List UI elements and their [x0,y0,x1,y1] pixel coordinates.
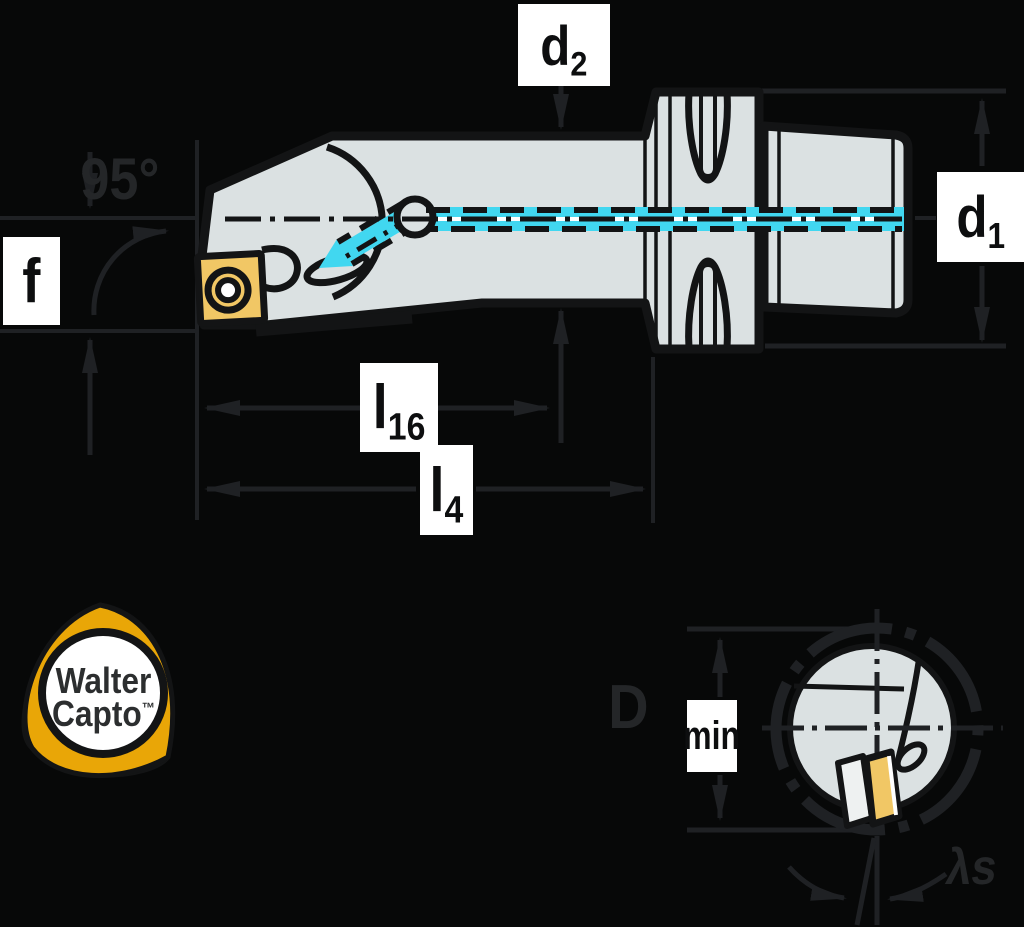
logo-text: Walter Capto™ [33,664,173,730]
label-lambda-s: λs [944,838,1000,896]
l16-base: l [373,373,388,442]
dmin-base: D [608,672,648,743]
label-d1: d1 [937,172,1024,262]
lambda-arrow-right [890,874,946,899]
angle-text: 95° [80,146,159,213]
label-dmin-base: D [606,672,651,743]
insert-screw-core [218,280,239,301]
f-base: f [22,246,40,317]
dmin-sub: min [684,714,741,759]
drawing-canvas [0,0,1024,927]
d1-sub: 1 [987,214,1005,256]
lambda-tilted-line [857,838,874,925]
section-rake-chord [794,686,904,689]
d1-base: d [956,185,987,250]
d2-base: d [540,14,570,77]
l16-sub: 16 [388,406,426,450]
label-d2: d2 [518,4,610,86]
logo-trademark: ™ [141,700,154,717]
label-f: f [3,237,60,325]
label-95-degrees: 95° [76,146,164,213]
angle-95-arc [94,231,166,315]
label-l16: l16 [360,363,438,452]
lambda-arrow-left [789,867,844,898]
pocket-clamp-hook [262,249,297,289]
tool-technical-drawing: d2 d1 f 95° l16 l4 D min λs Walter Capto… [0,0,1024,927]
lambda-text: λs [943,838,1000,896]
label-l4: l4 [420,445,473,535]
cutting-insert [197,253,264,323]
d2-sub: 2 [571,45,588,84]
l4-base: l [430,456,445,525]
label-dmin-sub: min [687,700,737,772]
l4-sub: 4 [445,488,464,532]
logo-line2: Capto [52,693,142,734]
